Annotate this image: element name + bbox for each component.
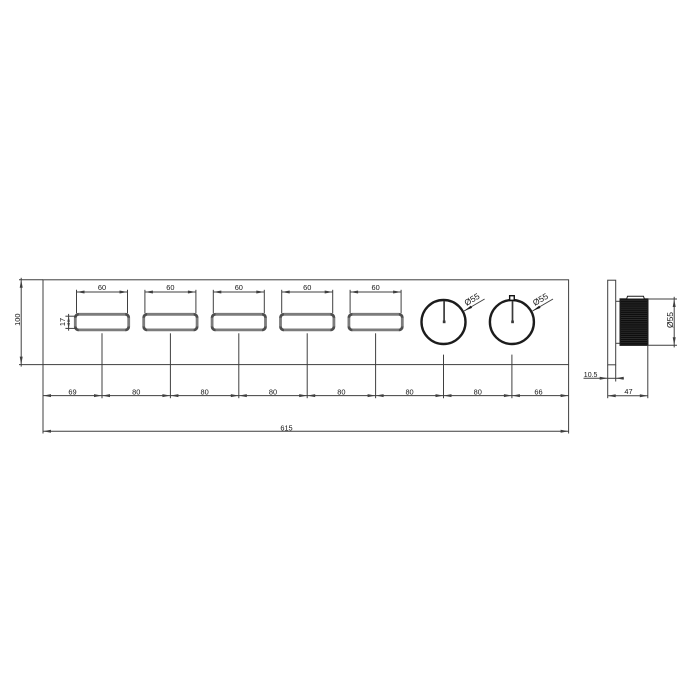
svg-text:60: 60: [303, 283, 311, 292]
svg-text:80: 80: [474, 388, 482, 397]
svg-text:80: 80: [200, 388, 208, 397]
svg-text:80: 80: [405, 388, 413, 397]
svg-text:60: 60: [235, 283, 243, 292]
svg-text:615: 615: [280, 423, 292, 432]
svg-text:47: 47: [624, 387, 632, 396]
svg-text:66: 66: [534, 388, 542, 397]
svg-text:69: 69: [68, 388, 76, 397]
svg-text:60: 60: [371, 283, 379, 292]
svg-text:80: 80: [337, 388, 345, 397]
svg-text:100: 100: [13, 314, 22, 326]
svg-text:17: 17: [58, 318, 67, 326]
svg-text:80: 80: [269, 388, 277, 397]
svg-text:60: 60: [98, 283, 106, 292]
svg-text:80: 80: [132, 388, 140, 397]
svg-text:Ø55: Ø55: [665, 312, 675, 328]
svg-text:60: 60: [166, 283, 174, 292]
svg-text:10.5: 10.5: [584, 372, 598, 379]
